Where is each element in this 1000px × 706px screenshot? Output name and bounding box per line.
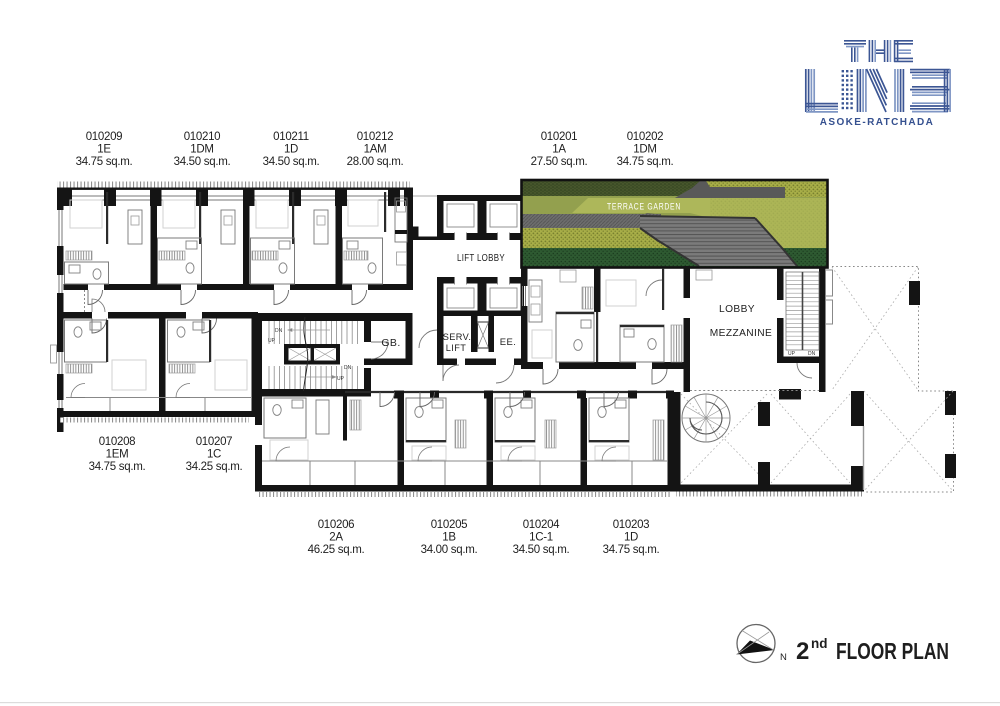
svg-text:SERV.: SERV. [443,332,472,342]
svg-text:UP: UP [337,376,345,382]
svg-text:1D: 1D [624,532,638,544]
svg-text:TERRACE GARDEN: TERRACE GARDEN [607,202,681,213]
svg-text:1B: 1B [442,532,456,544]
svg-text:1EM: 1EM [106,449,129,461]
svg-text:1A: 1A [552,144,566,156]
svg-text:LIFT LOBBY: LIFT LOBBY [457,253,505,264]
svg-text:nd: nd [811,636,828,651]
svg-text:UP: UP [268,338,276,344]
svg-text:010212: 010212 [357,131,394,143]
svg-text:34.75 sq.m.: 34.75 sq.m. [76,156,133,168]
svg-text:FLOOR PLAN: FLOOR PLAN [836,638,949,664]
svg-text:1E: 1E [97,144,111,156]
svg-text:34.50 sq.m.: 34.50 sq.m. [263,156,320,168]
svg-text:2: 2 [796,638,809,665]
svg-text:27.50 sq.m.: 27.50 sq.m. [531,156,588,168]
svg-text:010211: 010211 [273,131,309,143]
svg-text:MEZZANINE: MEZZANINE [710,328,772,339]
svg-text:010206: 010206 [318,519,355,531]
svg-text:34.50 sq.m.: 34.50 sq.m. [513,544,570,556]
svg-text:DN: DN [275,328,283,334]
svg-text:010209: 010209 [86,131,123,143]
svg-text:010202: 010202 [627,131,664,143]
svg-text:2A: 2A [329,532,343,544]
svg-text:34.25 sq.m.: 34.25 sq.m. [186,461,243,473]
svg-text:010205: 010205 [431,519,468,531]
svg-text:LIFT: LIFT [446,343,467,353]
svg-text:DN: DN [808,351,816,357]
svg-text:010210: 010210 [184,131,221,143]
svg-text:34.75 sq.m.: 34.75 sq.m. [603,544,660,556]
svg-text:010201: 010201 [541,131,578,143]
svg-text:34.50 sq.m.: 34.50 sq.m. [174,156,231,168]
svg-text:GB.: GB. [381,337,400,349]
svg-text:1DM: 1DM [190,144,213,156]
svg-text:1C-1: 1C-1 [529,532,553,544]
svg-text:N: N [780,652,787,663]
svg-text:010204: 010204 [523,519,560,531]
svg-text:34.75 sq.m.: 34.75 sq.m. [89,461,146,473]
svg-text:28.00 sq.m.: 28.00 sq.m. [347,156,404,168]
svg-text:1AM: 1AM [364,144,387,156]
svg-text:010208: 010208 [99,436,136,448]
svg-text:34.00 sq.m.: 34.00 sq.m. [421,544,478,556]
svg-text:EE.: EE. [500,337,517,348]
svg-text:010203: 010203 [613,519,650,531]
svg-text:DN: DN [344,365,352,371]
svg-text:UP: UP [788,351,796,357]
svg-text:1D: 1D [284,144,298,156]
svg-text:46.25 sq.m.: 46.25 sq.m. [308,544,365,556]
svg-text:ASOKE-RATCHADA: ASOKE-RATCHADA [820,117,934,128]
svg-text:1C: 1C [207,449,221,461]
svg-text:LOBBY: LOBBY [719,304,755,315]
svg-text:010207: 010207 [196,436,233,448]
svg-text:1DM: 1DM [633,144,656,156]
svg-text:34.75 sq.m.: 34.75 sq.m. [617,156,674,168]
